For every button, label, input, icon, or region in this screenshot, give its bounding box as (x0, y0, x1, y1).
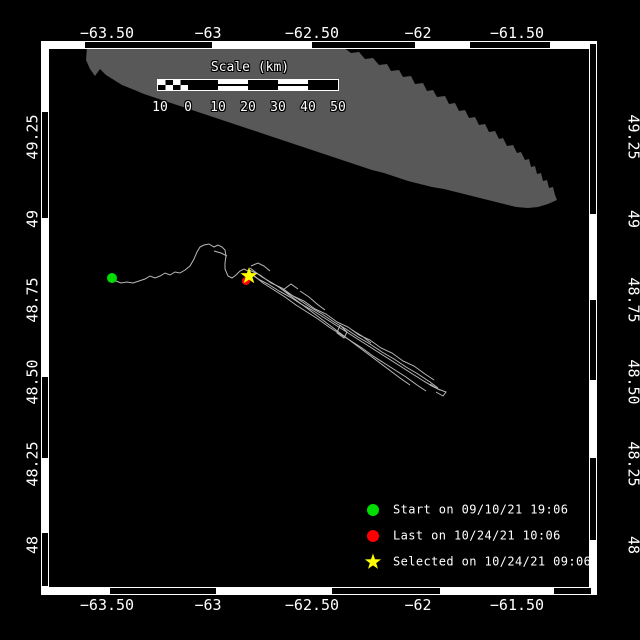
scale-bar-segment (248, 80, 278, 90)
drift-track (112, 244, 248, 283)
scale-bar (157, 79, 339, 91)
lat-label-right: 48 (626, 536, 640, 554)
lat-label-left: 49.25 (26, 114, 41, 159)
legend-marker-start (367, 504, 379, 516)
scale-bar-tick-label: 40 (300, 101, 316, 115)
drift-track-strand (430, 384, 446, 396)
lon-label-top: −62.50 (285, 26, 339, 41)
lat-label-right: 48.50 (626, 359, 640, 404)
drift-track-strand (248, 272, 440, 390)
drift-track-strand (283, 284, 298, 290)
lon-label-top: −62 (404, 26, 431, 41)
frame-tick-segment (85, 42, 212, 48)
frame-tick-segment (590, 300, 596, 380)
legend-marker-selected (365, 554, 381, 569)
scale-bar-segment (188, 80, 218, 90)
lat-label-left: 48.25 (26, 441, 41, 486)
legend-marker-last (367, 530, 379, 542)
scale-bar-tick-label: 0 (184, 101, 192, 115)
frame-tick-segment (42, 533, 48, 586)
frame-tick-segment (312, 42, 415, 48)
land-polygon (86, 47, 557, 208)
lat-label-left: 48.50 (26, 359, 41, 404)
lat-label-right: 49 (626, 210, 640, 228)
lat-label-right: 48.25 (626, 441, 640, 486)
drift-track-strand (251, 263, 270, 271)
scale-bar-segment (308, 80, 338, 90)
start-marker (107, 273, 117, 283)
lon-label-bottom: −63 (194, 598, 221, 613)
scale-bar-segment (218, 80, 248, 90)
lon-label-bottom: −63.50 (80, 598, 134, 613)
frame-tick-segment (332, 588, 440, 594)
legend-label-selected: Selected on 10/24/21 09:06 (393, 556, 591, 569)
lat-label-left: 48.75 (26, 277, 41, 322)
scale-bar-tick-label: 10 (210, 101, 226, 115)
scale-bar-segment (158, 80, 188, 90)
scale-bar-title: Scale (km) (211, 61, 289, 75)
scale-bar-segment (278, 80, 308, 90)
map-figure: Scale (km) −63.50−63−62.50−62−61.50−63.5… (0, 0, 640, 640)
lat-label-left: 48 (26, 536, 41, 554)
frame-tick-segment (590, 458, 596, 540)
lon-label-top: −63.50 (80, 26, 134, 41)
frame-tick-segment (42, 112, 48, 218)
lon-label-top: −61.50 (490, 26, 544, 41)
lat-label-left: 49 (26, 210, 41, 228)
lat-label-right: 49.25 (626, 114, 640, 159)
lon-label-top: −63 (194, 26, 221, 41)
scale-bar-tick-label: 10 (152, 101, 168, 115)
frame-tick-segment (470, 42, 550, 48)
lat-label-right: 48.75 (626, 277, 640, 322)
drift-track-strand (249, 270, 434, 380)
legend-label-start: Start on 09/10/21 19:06 (393, 504, 568, 517)
scale-bar-tick-label: 30 (270, 101, 286, 115)
frame-tick-segment (590, 44, 596, 214)
frame-tick-segment (42, 377, 48, 458)
frame-tick-segment (554, 588, 591, 594)
lon-label-bottom: −62 (404, 598, 431, 613)
lon-label-bottom: −61.50 (490, 598, 544, 613)
frame-tick-segment (110, 588, 216, 594)
lon-label-bottom: −62.50 (285, 598, 339, 613)
scale-bar-tick-label: 20 (240, 101, 256, 115)
legend-label-last: Last on 10/24/21 10:06 (393, 530, 561, 543)
map-canvas (0, 0, 640, 640)
scale-bar-tick-label: 50 (330, 101, 346, 115)
